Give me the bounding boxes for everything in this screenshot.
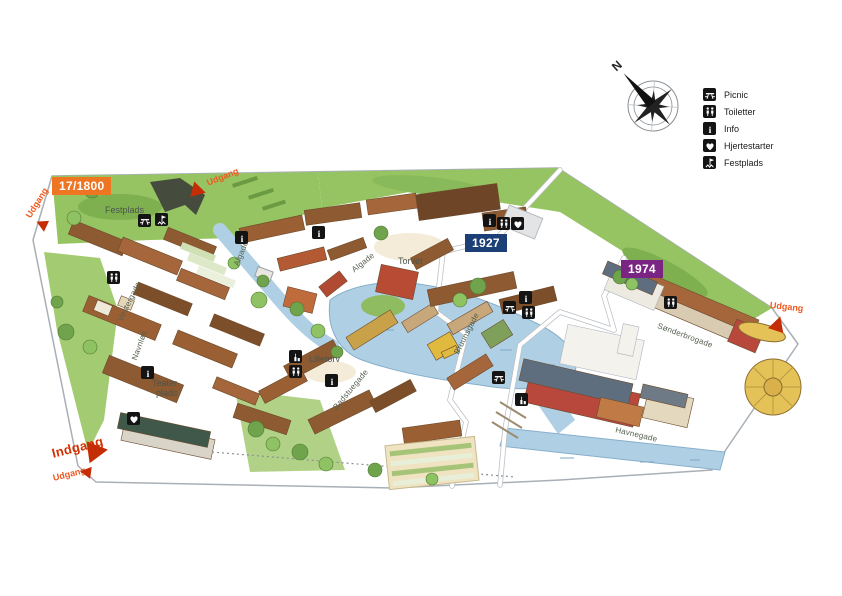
festplads-icon: [703, 156, 716, 169]
picnic-icon: [138, 214, 151, 227]
toilets-icon: [522, 306, 535, 319]
heart-icon: [127, 412, 140, 425]
picnic-icon: [503, 301, 516, 314]
legend-item-info: Info: [703, 120, 774, 137]
legend-label: Festplads: [724, 158, 763, 168]
legend-item-toiletter: Toiletter: [703, 103, 774, 120]
bottle-icon: [515, 393, 528, 406]
toilets-icon: [289, 365, 302, 378]
exit-arrow-south: [79, 465, 92, 478]
legend-label: Info: [724, 124, 739, 134]
legend-label: Toiletter: [724, 107, 756, 117]
teaterplads-label-line1: Teater-: [152, 378, 180, 388]
museum-map: i: [0, 0, 842, 596]
era-label-1974: 1974: [621, 260, 663, 278]
picnic-icon: [703, 88, 716, 101]
torvet-label: Torvet: [398, 256, 423, 266]
heart-icon: [703, 139, 716, 152]
info-icon: [312, 226, 325, 239]
info-icon: [235, 231, 248, 244]
heart-icon: [511, 217, 524, 230]
info-icon: [483, 214, 496, 227]
lilletorv-label: Lilletorv: [309, 354, 340, 364]
legend-item-hjertestarter: Hjertestarter: [703, 137, 774, 154]
legend-item-festplads: Festplads: [703, 154, 774, 171]
era-label-17-1800: 17/1800: [52, 177, 111, 195]
info-icon: [141, 366, 154, 379]
info-icon: [519, 291, 532, 304]
compass-north-label: N: [609, 58, 625, 74]
era-label-1927: 1927: [465, 234, 507, 252]
info-icon: [703, 122, 716, 135]
compass-rose: N: [594, 44, 689, 141]
picnic-icon: [492, 371, 505, 384]
info-icon: [325, 374, 338, 387]
bottle-icon: [289, 350, 302, 363]
entrance-arrow: [87, 439, 110, 464]
toilets-icon: [107, 271, 120, 284]
teaterplads-label-line2: plads: [156, 388, 178, 398]
legend-label: Hjertestarter: [724, 141, 774, 151]
festplads-icon: [155, 213, 168, 226]
toilets-icon: [664, 296, 677, 309]
toilets-icon: [497, 217, 510, 230]
legend: Picnic Toiletter Info Hjertestarter Fest…: [703, 86, 774, 171]
toilets-icon: [703, 105, 716, 118]
legend-item-picnic: Picnic: [703, 86, 774, 103]
legend-label: Picnic: [724, 90, 748, 100]
